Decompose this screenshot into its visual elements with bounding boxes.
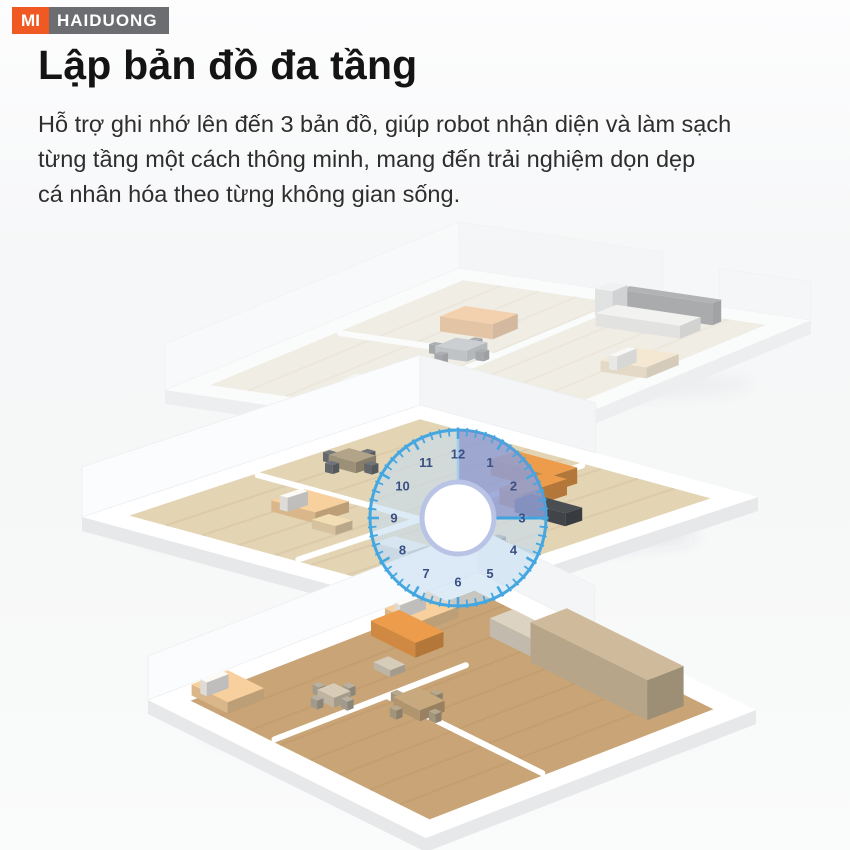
description-line: từng tầng một cách thông minh, mang đến … <box>38 142 731 177</box>
clock-numeral: 6 <box>454 575 461 590</box>
clock-numeral: 5 <box>486 566 493 581</box>
clock-numeral: 12 <box>451 447 465 462</box>
section-title: Lập bản đồ đa tầng <box>38 42 417 89</box>
clock-numeral: 3 <box>518 511 525 526</box>
description-line: cá nhân hóa theo từng không gian sống. <box>38 177 731 212</box>
mi-logo-badge: MI <box>12 7 49 34</box>
store-logo: MI HAIDUONG <box>12 7 169 34</box>
clock-numeral: 9 <box>390 511 397 526</box>
multi-floor-map-illustration: 12 1 2 3 4 5 6 7 8 9 10 11 <box>0 222 850 850</box>
clock-numeral: 4 <box>510 543 518 558</box>
clock-numeral: 11 <box>419 455 433 470</box>
clock-numeral: 1 <box>486 455 493 470</box>
clock-numeral: 8 <box>399 543 406 558</box>
section-description: Hỗ trợ ghi nhớ lên đến 3 bản đồ, giúp ro… <box>38 107 731 212</box>
clock-numeral: 2 <box>510 479 517 494</box>
store-name-badge: HAIDUONG <box>49 7 169 34</box>
clock-numeral: 7 <box>422 566 429 581</box>
description-line: Hỗ trợ ghi nhớ lên đến 3 bản đồ, giúp ro… <box>38 107 731 142</box>
promo-page: { "header": { "logo": { "mi_label": "MI"… <box>0 0 850 850</box>
clock-numeral: 10 <box>395 479 409 494</box>
